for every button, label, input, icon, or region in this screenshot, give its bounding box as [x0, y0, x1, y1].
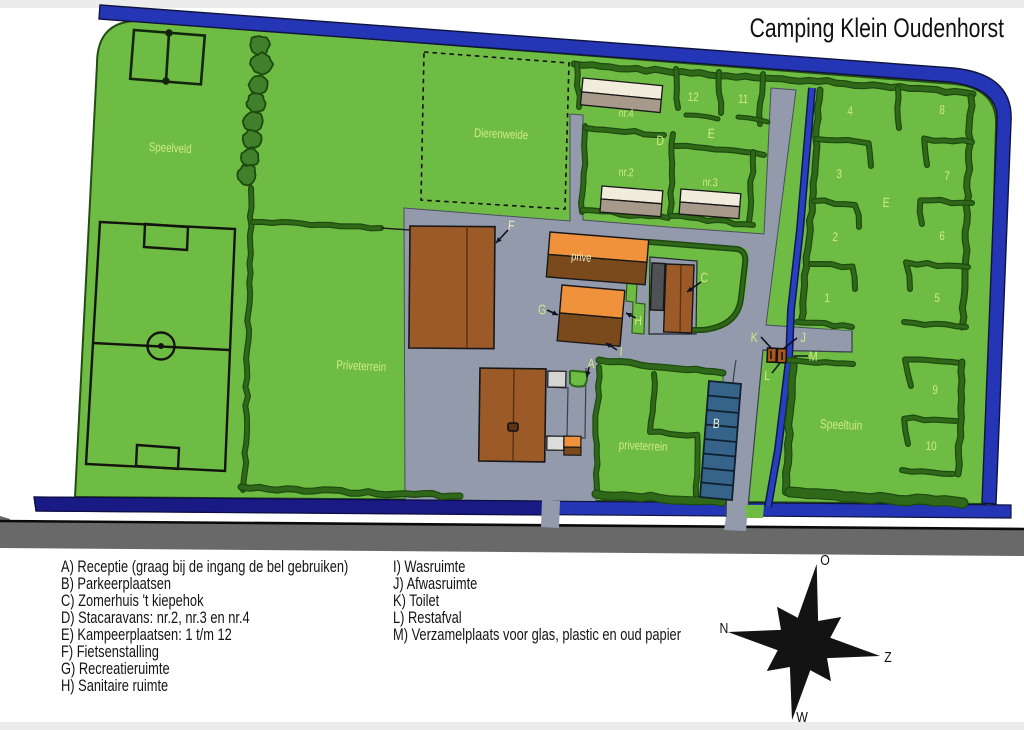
svg-text:2: 2 — [832, 231, 838, 245]
svg-text:E) Kampeerplaatsen: 1 t/m 12: E) Kampeerplaatsen: 1 t/m 12 — [61, 627, 232, 645]
svg-text:J: J — [800, 330, 806, 346]
svg-text:J) Afwasruimte: J) Afwasruimte — [393, 576, 477, 594]
svg-text:Camping Klein Oudenhorst: Camping Klein Oudenhorst — [750, 14, 1005, 44]
svg-text:3: 3 — [836, 168, 842, 182]
svg-text:H: H — [634, 313, 642, 329]
svg-text:W: W — [796, 709, 808, 725]
svg-text:Dierenweide: Dierenweide — [474, 127, 529, 143]
svg-text:K: K — [750, 330, 758, 346]
svg-text:A) Receptie (graag bij de inga: A) Receptie (graag bij de ingang de bel … — [61, 559, 348, 577]
svg-text:I) Wasruimte: I) Wasruimte — [393, 559, 465, 577]
svg-text:11: 11 — [738, 93, 749, 107]
svg-text:priveterrein: priveterrein — [619, 439, 668, 454]
svg-text:L: L — [764, 368, 771, 384]
svg-text:F) Fietsenstalling: F) Fietsenstalling — [61, 644, 159, 662]
svg-text:prive: prive — [571, 250, 592, 265]
svg-text:L) Restafval: L) Restafval — [393, 610, 462, 628]
svg-text:7: 7 — [944, 170, 950, 184]
svg-text:C: C — [700, 270, 709, 286]
svg-text:E: E — [882, 195, 890, 211]
svg-text:M) Verzamelplaats voor glas, p: M) Verzamelplaats voor glas, plastic en … — [393, 627, 681, 645]
svg-text:C) Zomerhuis 't kiepehok: C) Zomerhuis 't kiepehok — [61, 593, 204, 611]
svg-text:B: B — [712, 415, 720, 431]
svg-text:G) Recreatieruimte: G) Recreatieruimte — [61, 661, 170, 679]
svg-text:5: 5 — [934, 292, 940, 306]
svg-text:12: 12 — [687, 91, 698, 105]
svg-text:E: E — [707, 126, 715, 142]
svg-text:F: F — [508, 218, 516, 234]
svg-text:M: M — [808, 349, 817, 365]
svg-text:Speelveld: Speelveld — [148, 141, 191, 157]
svg-text:nr.3: nr.3 — [702, 177, 718, 190]
svg-text:Z: Z — [884, 649, 892, 665]
svg-text:6: 6 — [939, 230, 945, 244]
svg-text:nr.4: nr.4 — [618, 108, 634, 121]
svg-text:K) Toilet: K) Toilet — [393, 593, 439, 611]
svg-text:nr.2: nr.2 — [618, 167, 634, 180]
svg-text:Priveterrein: Priveterrein — [336, 359, 386, 375]
svg-text:N: N — [720, 620, 729, 636]
svg-text:8: 8 — [939, 104, 945, 118]
svg-text:1: 1 — [824, 292, 830, 306]
svg-text:G: G — [538, 302, 547, 318]
svg-text:D: D — [656, 133, 665, 149]
svg-text:B) Parkeerplaatsen: B) Parkeerplaatsen — [61, 576, 171, 594]
svg-text:4: 4 — [847, 105, 853, 119]
svg-text:D) Stacaravans: nr.2, nr.3 en: D) Stacaravans: nr.2, nr.3 en nr.4 — [61, 610, 250, 628]
svg-text:O: O — [820, 552, 830, 568]
svg-text:Speeltuin: Speeltuin — [820, 417, 863, 433]
svg-text:H) Sanitaire ruimte: H) Sanitaire ruimte — [61, 678, 168, 696]
svg-text:10: 10 — [925, 440, 936, 454]
svg-text:9: 9 — [932, 384, 938, 398]
